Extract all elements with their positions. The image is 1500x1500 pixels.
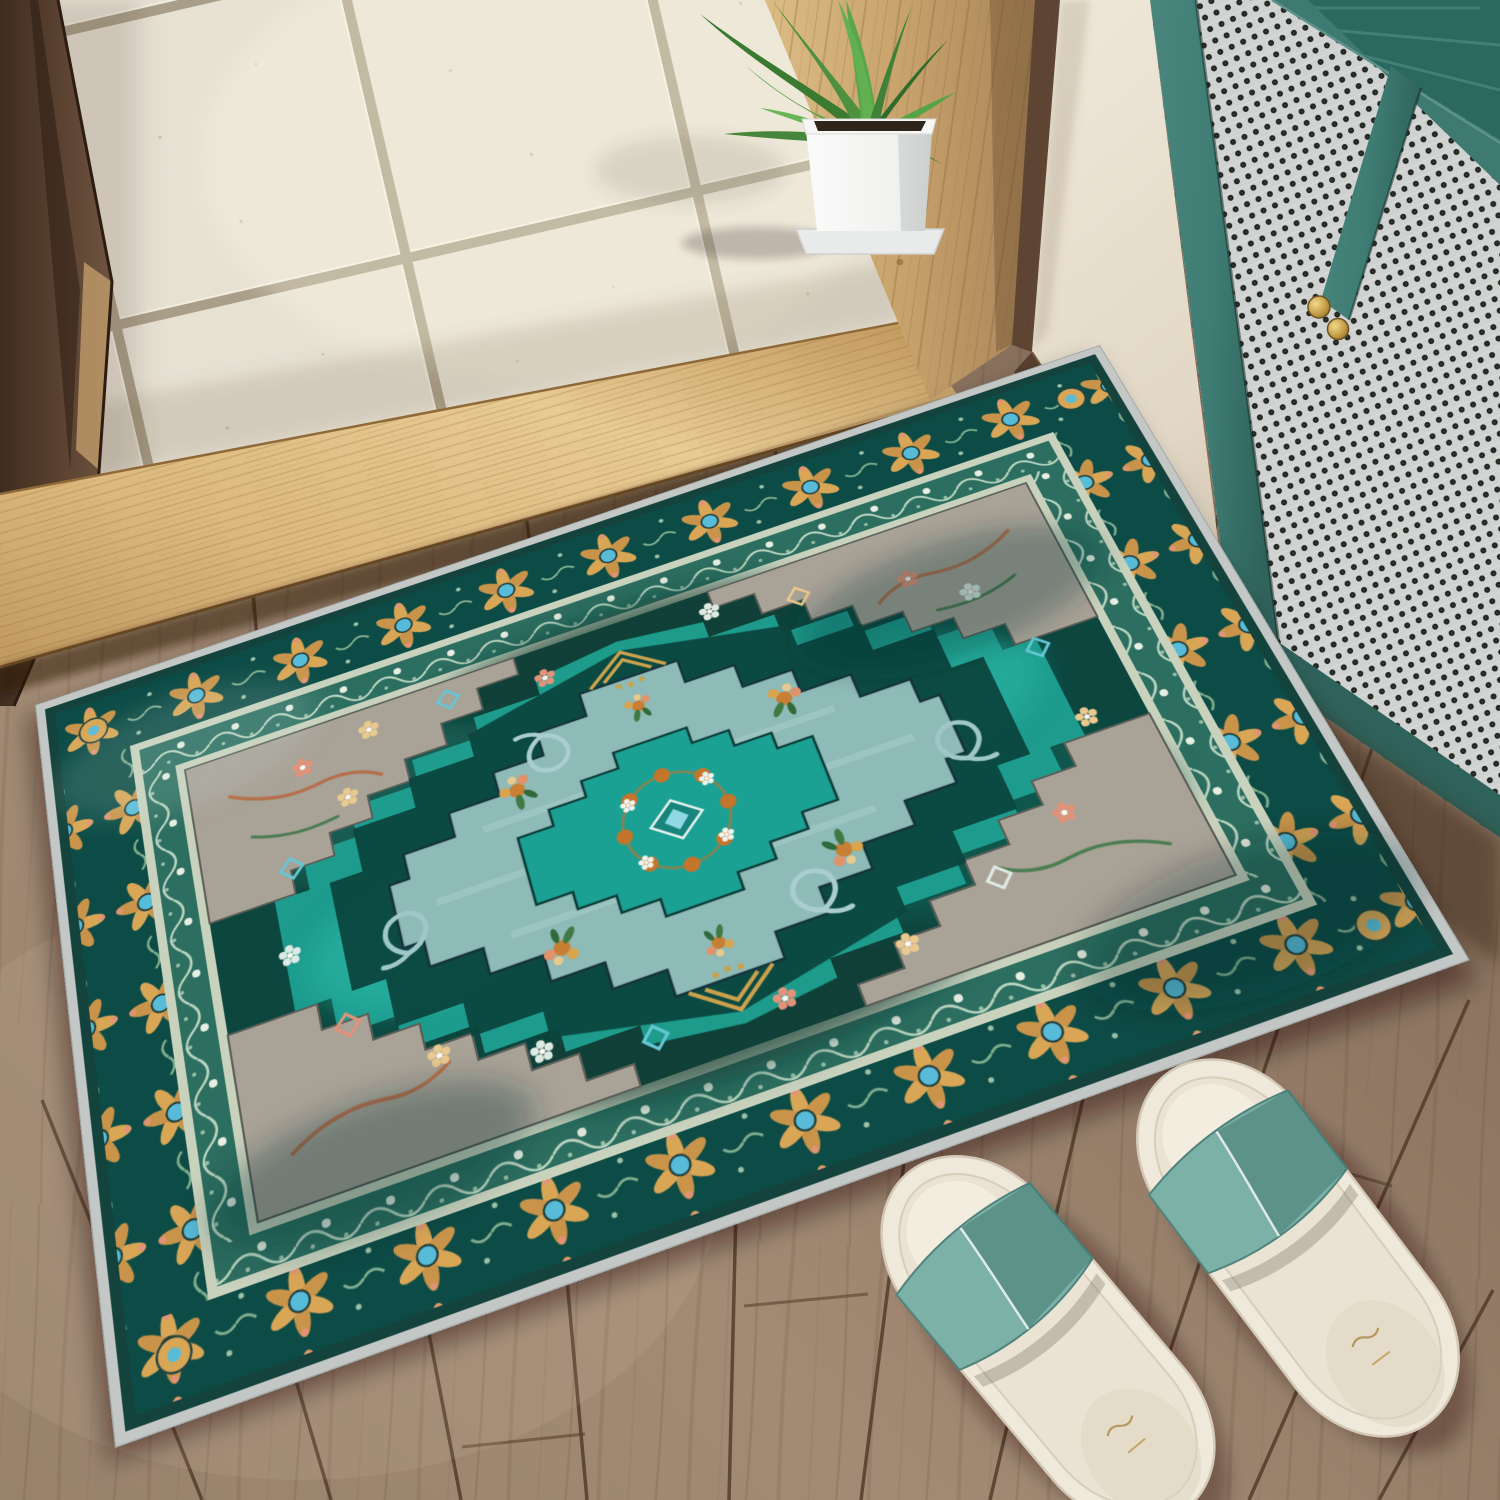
plant-pot xyxy=(796,119,944,254)
pot-soil xyxy=(814,121,926,131)
cabinet-knob-left xyxy=(1308,296,1330,318)
entryway-rug-photo xyxy=(0,0,1500,1500)
cabinet-knob-right xyxy=(1328,319,1349,340)
